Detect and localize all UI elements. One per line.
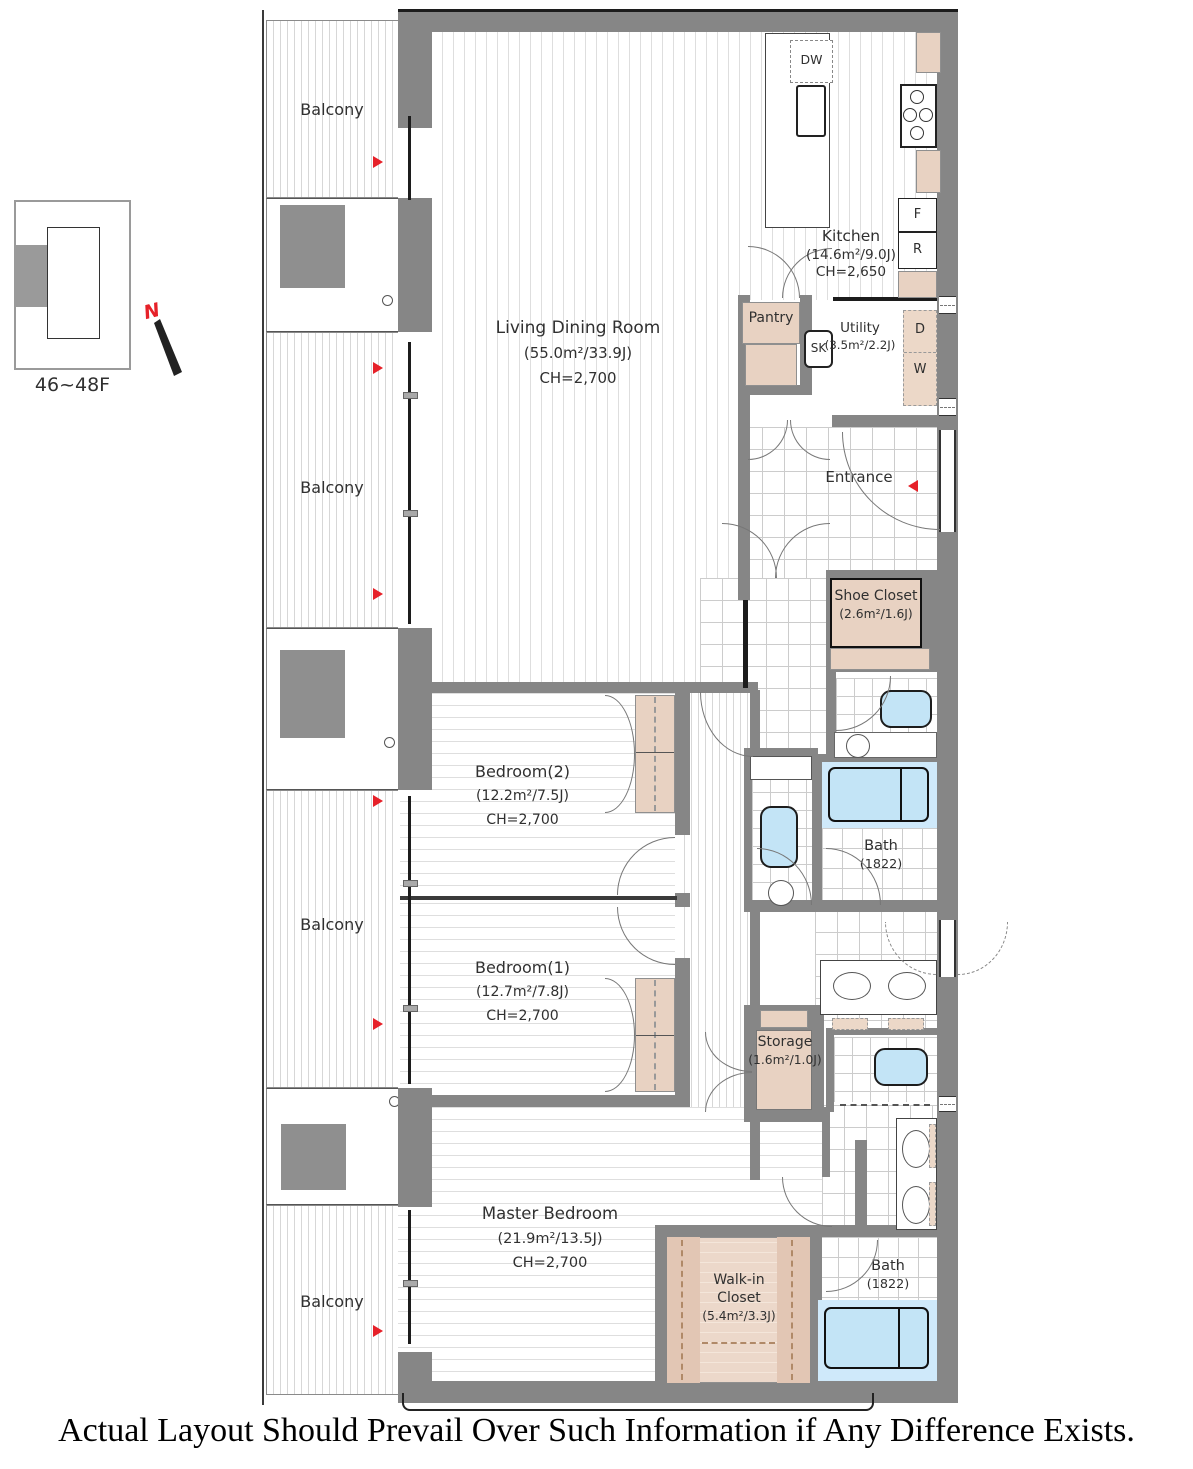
master-bedroom-label: Master Bedroom (21.9m²/13.5J) CH=2,700 — [440, 1204, 660, 1273]
wall — [832, 415, 937, 427]
window — [408, 796, 411, 1084]
balcony-access-marker — [373, 362, 383, 374]
wall — [750, 912, 760, 1008]
window — [939, 296, 956, 314]
kitchen-island-sink — [796, 85, 826, 137]
burner-icon — [910, 126, 924, 140]
burner-icon — [903, 108, 917, 122]
key-plan-unit-highlight — [14, 245, 47, 307]
toilet2-niche — [750, 756, 812, 780]
wall — [750, 1120, 760, 1180]
bathtub — [824, 1307, 929, 1369]
wall — [655, 1225, 822, 1237]
balcony-access-marker — [373, 1018, 383, 1030]
door-arc-dashed — [958, 922, 1008, 975]
wall — [398, 12, 958, 32]
washer-label: W — [903, 362, 937, 377]
wall — [675, 958, 690, 1100]
window-sash — [403, 880, 418, 887]
washbasin — [846, 734, 870, 758]
window-sash — [403, 1280, 418, 1287]
sliding-door — [743, 600, 748, 688]
dryer-label: D — [903, 322, 937, 337]
living-label: Living Dining Room (55.0m²/33.9J) CH=2,7… — [478, 318, 678, 388]
window-sash — [403, 392, 418, 399]
closet-rod — [654, 697, 656, 811]
ac-unit-2 — [280, 650, 345, 738]
utility-label: Utility (3.5m²/2.2J) — [818, 320, 902, 352]
window — [408, 116, 411, 200]
window — [939, 1096, 956, 1112]
balcony-access-marker — [373, 156, 383, 168]
wall — [812, 754, 822, 910]
wall — [398, 12, 432, 128]
bathtub-divider — [900, 769, 902, 820]
burner-icon — [910, 90, 924, 104]
burner-icon — [919, 108, 933, 122]
vanity-sink — [833, 972, 871, 1000]
wall — [400, 896, 677, 900]
key-plan — [14, 200, 131, 370]
balcony-3 — [266, 790, 398, 1088]
vanity-sink — [888, 972, 926, 1000]
balcony-label-4: Balcony — [270, 1292, 394, 1311]
walk-in-closet-label: Walk-in Closet (5.4m²/3.3J) — [688, 1272, 790, 1324]
key-plan-tower-outline — [47, 227, 100, 339]
window — [408, 1210, 411, 1344]
shoe-closet-counter — [830, 648, 930, 670]
closet-divider — [636, 752, 674, 753]
wall — [738, 385, 812, 395]
window-sash — [403, 510, 418, 517]
storage-shelf — [760, 1010, 808, 1028]
entrance-door-leaf — [939, 430, 956, 532]
closet-rod — [791, 1240, 793, 1380]
kitchen-cabinet — [916, 32, 941, 73]
disclaimer-text: Actual Layout Should Prevail Over Such I… — [0, 1412, 1193, 1450]
vanity-mat — [929, 1182, 936, 1226]
balcony-access-marker — [373, 1325, 383, 1337]
vanity-mat — [832, 1018, 868, 1030]
wall — [398, 198, 432, 332]
balcony-outer-edge — [262, 10, 264, 1405]
drain-1 — [382, 295, 393, 306]
toilet — [880, 690, 932, 728]
bathtub — [828, 767, 929, 822]
window — [408, 342, 411, 624]
pantry-shelf — [745, 344, 797, 386]
bedroom2-label: Bedroom(2) (12.2m²/7.5J) CH=2,700 — [420, 762, 625, 829]
wall — [937, 12, 958, 1403]
balcony-label-3: Balcony — [270, 915, 394, 934]
vanity-mat — [888, 1018, 924, 1030]
dishwasher-label: DW — [790, 52, 833, 67]
wall — [855, 1140, 867, 1232]
vanity-sink — [902, 1130, 930, 1168]
pantry-label: Pantry — [740, 310, 802, 327]
ac-unit-3 — [281, 1124, 346, 1190]
closet-rod — [702, 1342, 775, 1344]
closet-divider — [636, 1035, 674, 1036]
north-arrow-icon: N — [138, 296, 190, 380]
window-sash — [403, 1005, 418, 1012]
vanity-mat — [929, 1124, 936, 1168]
toilet — [874, 1048, 928, 1086]
wall — [675, 693, 690, 835]
wall — [398, 1095, 690, 1107]
slab-outline — [402, 1393, 874, 1411]
window — [939, 398, 956, 416]
floor-plan-page: 46~48F N — [0, 0, 1193, 1469]
key-plan-floor-label: 46~48F — [14, 374, 131, 397]
laundry-divider — [904, 352, 936, 353]
balcony-access-marker — [373, 795, 383, 807]
bedroom1-label: Bedroom(1) (12.7m²/7.8J) CH=2,700 — [420, 958, 625, 1025]
wall — [744, 748, 818, 756]
ac-unit-1 — [280, 205, 345, 288]
sliding-door-dashed — [840, 1104, 930, 1106]
kitchen-label: Kitchen (14.6m²/9.0J) CH=2,650 — [790, 228, 912, 281]
shoe-closet-label: Shoe Closet (2.6m²/1.6J) — [831, 588, 921, 622]
wall — [675, 893, 690, 907]
freezer-label: F — [898, 207, 937, 222]
balcony-access-marker — [373, 588, 383, 600]
balcony-label-2: Balcony — [270, 478, 394, 497]
bathtub-divider — [898, 1309, 900, 1367]
closet-rod — [681, 1240, 683, 1380]
drain-2 — [384, 737, 395, 748]
wall — [822, 1107, 830, 1177]
kitchen-cabinet — [916, 150, 941, 193]
service-door-leaf — [939, 920, 956, 977]
balcony-label-1: Balcony — [270, 100, 394, 119]
vanity-sink — [902, 1186, 930, 1224]
